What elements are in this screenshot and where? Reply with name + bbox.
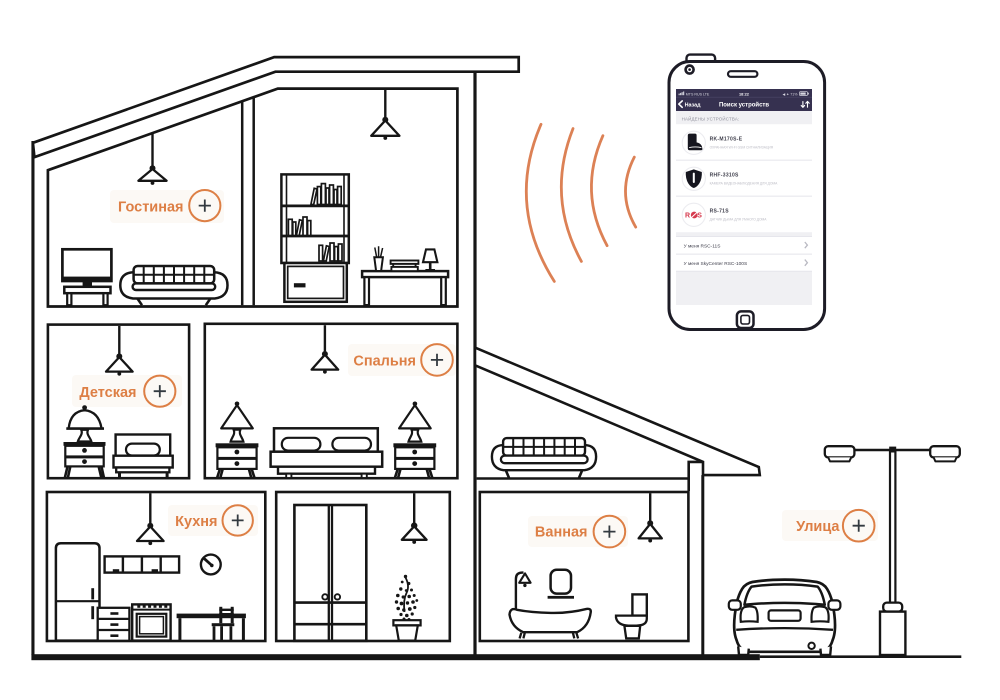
svg-text:У меня SkyCenter RSC-100S: У меня SkyCenter RSC-100S: [684, 261, 748, 267]
svg-text:Гостиная: Гостиная: [118, 199, 184, 215]
svg-text:НАЙДЕНЫ УСТРОЙСТВА:: НАЙДЕНЫ УСТРОЙСТВА:: [682, 117, 740, 122]
svg-text:Ванная: Ванная: [535, 525, 588, 541]
svg-text:RHF-3310S: RHF-3310S: [710, 172, 739, 178]
svg-text:Спальня: Спальня: [353, 353, 416, 369]
svg-text:◀ ✦ 71%: ◀ ✦ 71%: [783, 92, 799, 96]
svg-text:Назад: Назад: [685, 102, 702, 108]
svg-text:КАМЕРА ВИДЕОНАБЛЮДЕНИЯ ДЛЯ ДОМ: КАМЕРА ВИДЕОНАБЛЮДЕНИЯ ДЛЯ ДОМА: [710, 182, 779, 186]
svg-text:S: S: [697, 213, 702, 220]
svg-text:Кухня: Кухня: [175, 514, 217, 530]
svg-text:ОХРАННАЯ WI-FI GSM СИГНАЛИЗАЦИ: ОХРАННАЯ WI-FI GSM СИГНАЛИЗАЦИЯ: [710, 146, 774, 150]
svg-text:ДАТЧИК ДЫМА ДЛЯ УМНОГО ДОМА: ДАТЧИК ДЫМА ДЛЯ УМНОГО ДОМА: [710, 218, 768, 222]
svg-text:Улица: Улица: [796, 519, 840, 535]
svg-text:RK-M170S-E: RK-M170S-E: [710, 136, 743, 142]
svg-text:18:22: 18:22: [739, 91, 750, 96]
svg-text:У меня RSC-11S: У меня RSC-11S: [684, 243, 721, 249]
svg-text:Детская: Детская: [79, 385, 136, 401]
svg-text:Поиск устройств: Поиск устройств: [719, 102, 769, 109]
svg-text:MTS RUS LTE: MTS RUS LTE: [686, 92, 710, 96]
svg-text:R: R: [685, 213, 690, 220]
svg-text:RS-71S: RS-71S: [710, 208, 730, 214]
